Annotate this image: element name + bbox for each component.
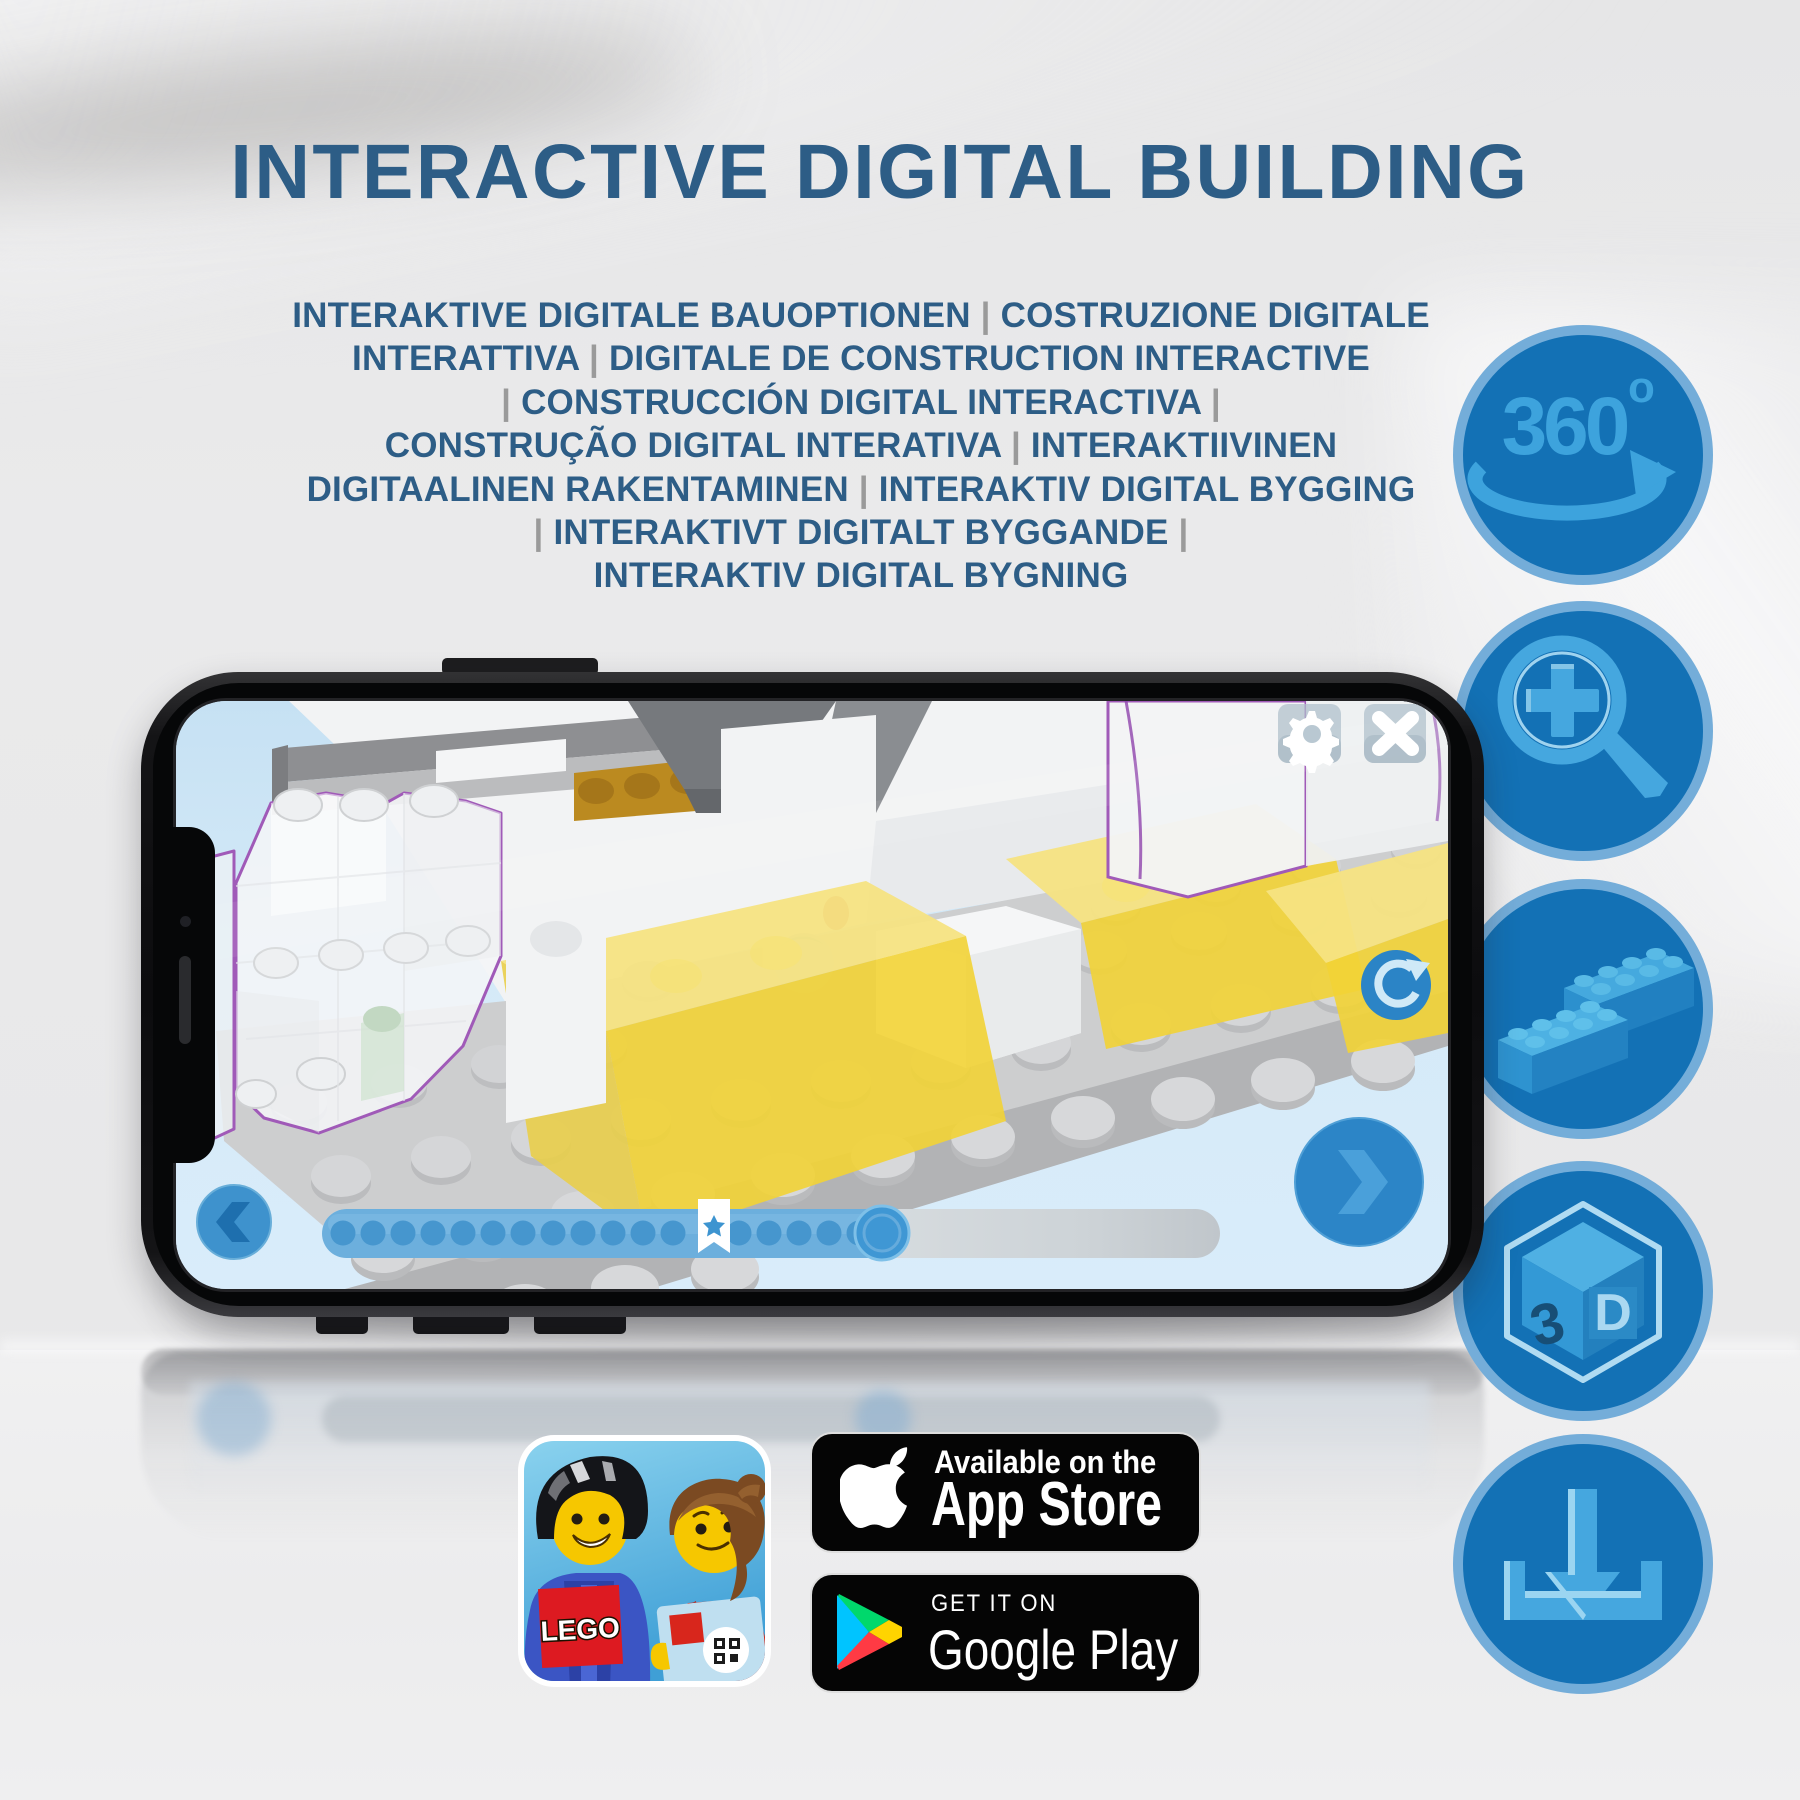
svg-text:LEGO: LEGO <box>540 1612 621 1647</box>
svg-text:o: o <box>1628 363 1655 412</box>
svg-text:D: D <box>1594 1284 1632 1342</box>
svg-text:360: 360 <box>1502 381 1628 472</box>
